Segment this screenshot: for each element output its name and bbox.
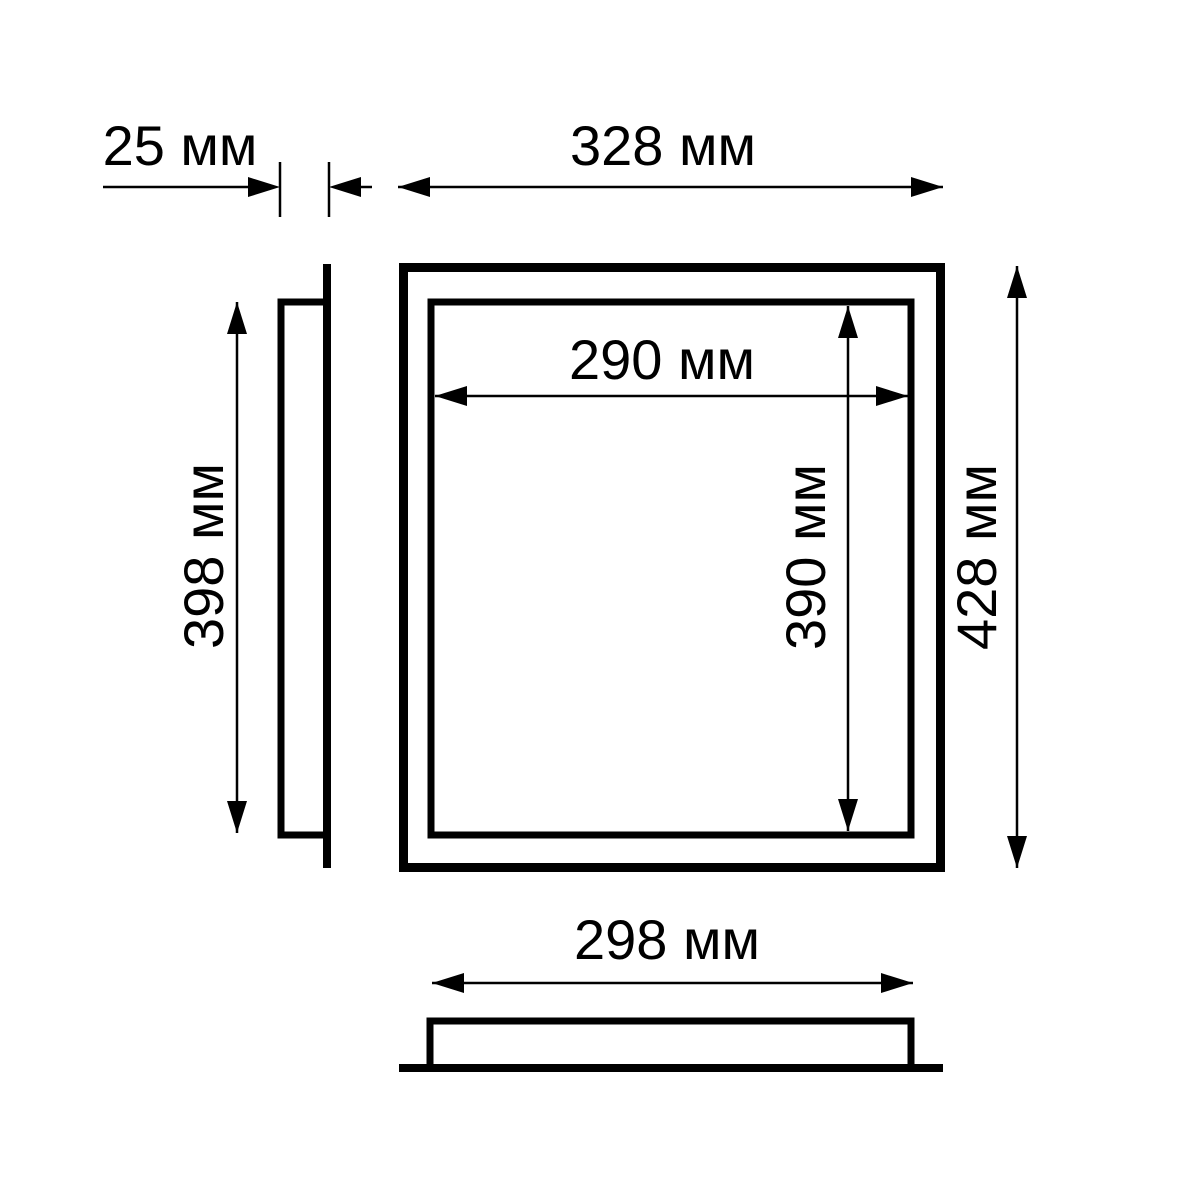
- dimension-label-inner-height: 390 мм: [778, 464, 834, 650]
- arrowhead-left-icon: [329, 177, 361, 197]
- dimension-label-side-height: 398 мм: [176, 463, 232, 649]
- dimension-label-depth: 25 мм: [103, 118, 258, 174]
- arrowhead-right-icon: [248, 177, 280, 197]
- arrowhead-up-icon: [227, 302, 247, 334]
- dimension-drawing: 25 мм 328 мм 290 мм 398 мм 390 мм 428 мм…: [0, 0, 1200, 1200]
- dimension-outer-width: [398, 177, 943, 197]
- arrowhead-down-icon: [1007, 836, 1027, 868]
- dimension-inner-height: [838, 306, 858, 831]
- arrowhead-up-icon: [1007, 266, 1027, 298]
- bottom-view-body-outline: [430, 1021, 911, 1068]
- arrowhead-down-icon: [227, 801, 247, 833]
- arrowhead-up-icon: [838, 306, 858, 338]
- arrowhead-right-icon: [911, 177, 943, 197]
- dimension-label-inner-width: 290 мм: [569, 332, 755, 388]
- dimension-label-outer-height: 428 мм: [949, 464, 1005, 650]
- arrowhead-right-icon: [881, 973, 913, 993]
- bottom-view: [399, 1021, 943, 1068]
- arrowhead-down-icon: [838, 799, 858, 831]
- dimension-bottom-width: [432, 973, 913, 993]
- arrowhead-right-icon: [876, 386, 908, 406]
- side-view-body-outline: [281, 302, 327, 835]
- arrowhead-left-icon: [398, 177, 430, 197]
- dimension-outer-height: [1007, 266, 1027, 868]
- dimension-label-outer-width: 328 мм: [570, 118, 756, 174]
- dimension-label-bottom-width: 298 мм: [574, 912, 760, 968]
- side-view: [281, 264, 327, 868]
- arrowhead-left-icon: [435, 386, 467, 406]
- arrowhead-left-icon: [432, 973, 464, 993]
